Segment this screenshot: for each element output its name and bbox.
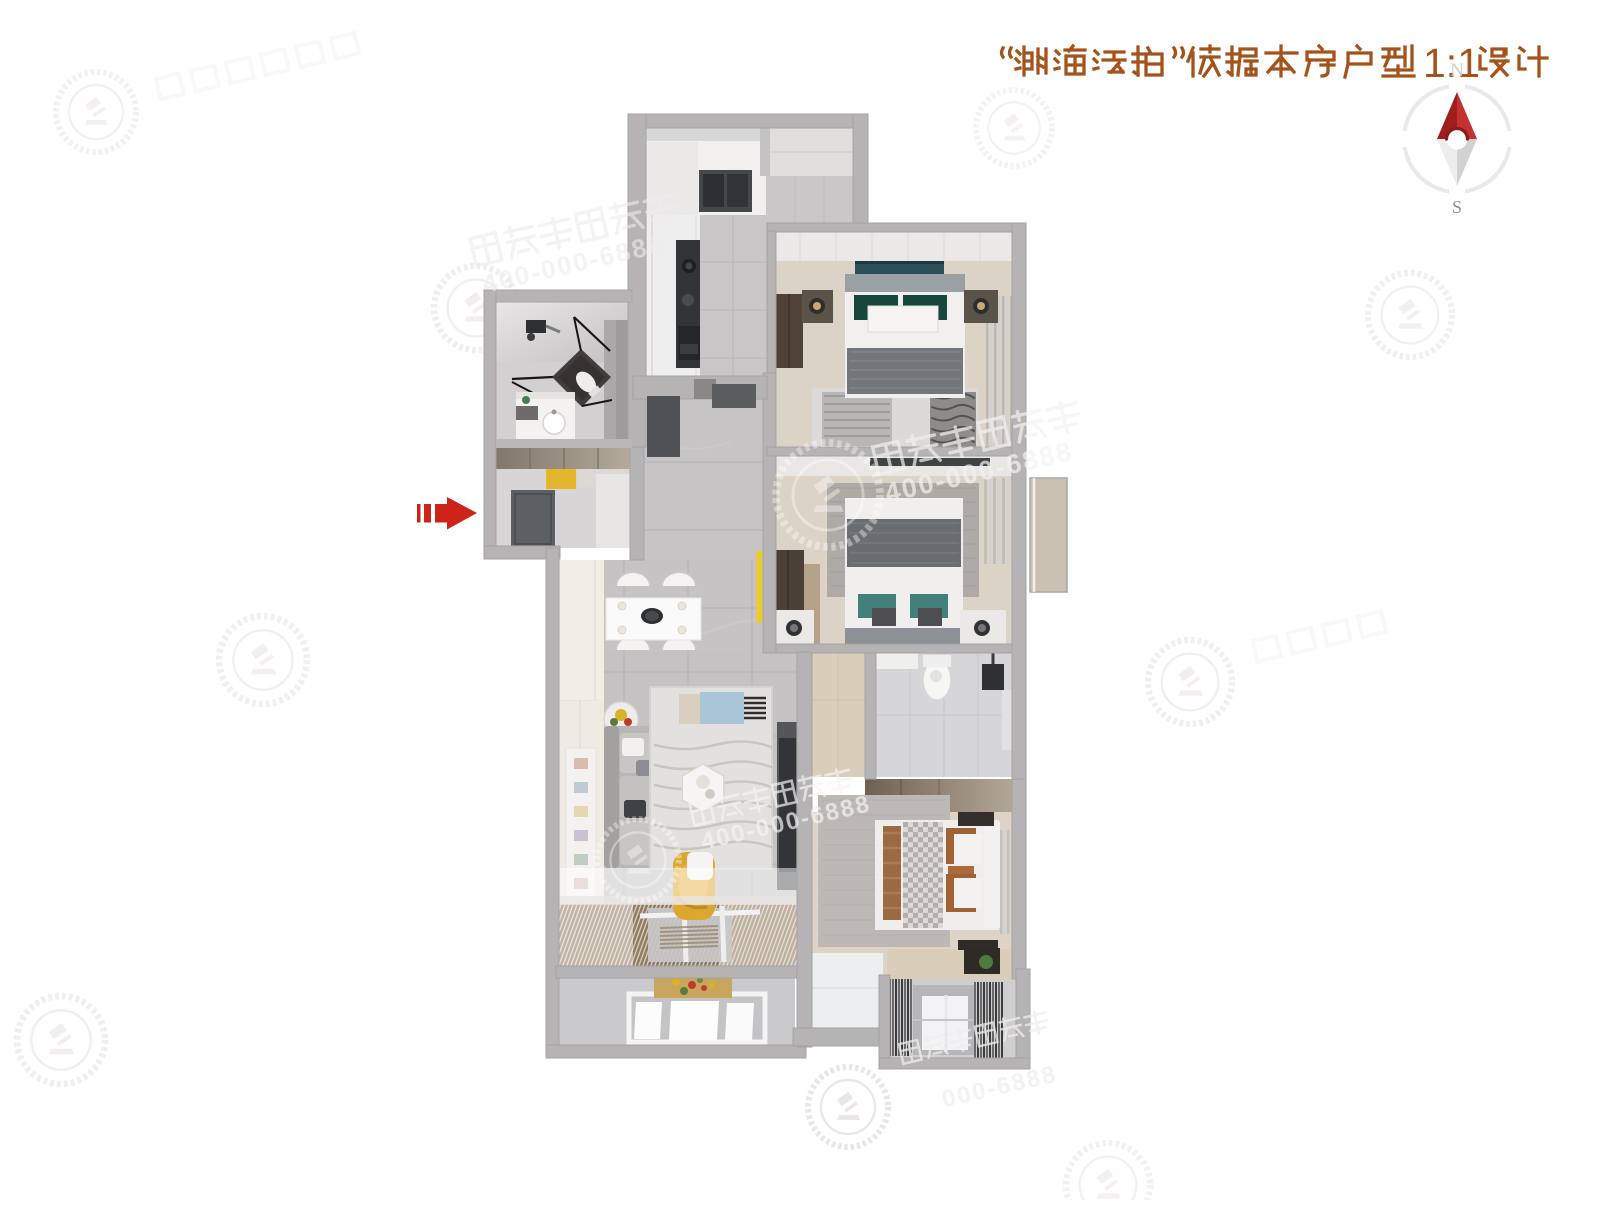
svg-text:S: S bbox=[1452, 197, 1462, 217]
svg-text:N: N bbox=[1450, 60, 1464, 81]
